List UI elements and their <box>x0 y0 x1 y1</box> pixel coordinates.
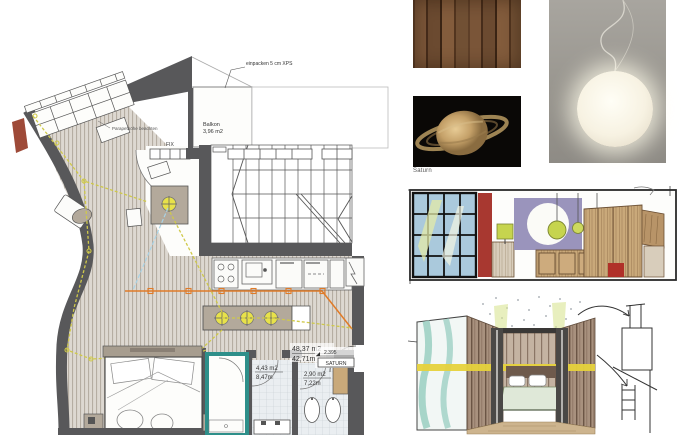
balcony-area: 3,96 m2 <box>203 129 223 135</box>
pendant-sphere <box>548 221 566 239</box>
design-presentation-page: einpacken 5 cm XPS Parapethöhe beachten … <box>0 0 688 435</box>
chair <box>126 208 142 226</box>
kitchen-island <box>203 306 310 330</box>
red-column <box>478 193 492 277</box>
floor-plan: einpacken 5 cm XPS Parapethöhe beachten … <box>0 0 400 435</box>
level-mark: 2.395 <box>324 350 337 356</box>
bath-large-area: 4,43 m2 <box>256 366 278 372</box>
elevation-sketch <box>408 186 680 286</box>
water-heater <box>333 366 348 394</box>
red-box <box>608 263 624 277</box>
sink-unit <box>242 260 272 284</box>
project-name: SATURN <box>326 361 347 367</box>
staircase <box>211 145 352 243</box>
pendant-sphere <box>573 223 584 234</box>
sink <box>326 398 341 423</box>
bottom-wall <box>58 428 203 435</box>
saturn-caption: Saturn <box>413 168 432 174</box>
bed <box>84 346 222 433</box>
stove <box>214 260 238 288</box>
bath-small-perimeter: 7,22m <box>304 381 321 387</box>
pillow <box>152 358 194 385</box>
parapet-note: Parapethöhe beachten <box>112 126 158 131</box>
saturn-photo <box>413 96 521 167</box>
living-perimeter: 42,71m <box>292 356 316 363</box>
fix-window-label: FIX <box>166 142 174 148</box>
insulation-note: einpacken 5 cm XPS <box>246 61 293 67</box>
pillow <box>529 375 546 386</box>
stair-entry-door <box>213 147 226 152</box>
bathroom-teal <box>207 354 247 435</box>
bath-large-perimeter: 8,47m <box>256 375 273 381</box>
moon-sphere <box>577 71 653 147</box>
wood-shelf <box>642 210 664 248</box>
sink <box>305 398 320 423</box>
moon-lamp-image <box>549 0 666 163</box>
saturn-art <box>413 96 521 167</box>
balcony-name: Balkon <box>203 122 220 128</box>
kitchen-counter <box>212 258 364 290</box>
teal-wall <box>408 316 467 430</box>
vanity <box>254 420 290 434</box>
perspective-sketch <box>408 292 688 435</box>
insulation-block <box>12 118 28 153</box>
window-wall <box>413 193 476 277</box>
wood-texture-image <box>413 0 521 68</box>
cushion <box>117 410 143 430</box>
low-cabinet <box>492 242 514 277</box>
bath-small-area: 2,90 m2 <box>304 372 326 378</box>
facade-windows <box>150 149 352 159</box>
pillow <box>509 376 525 386</box>
